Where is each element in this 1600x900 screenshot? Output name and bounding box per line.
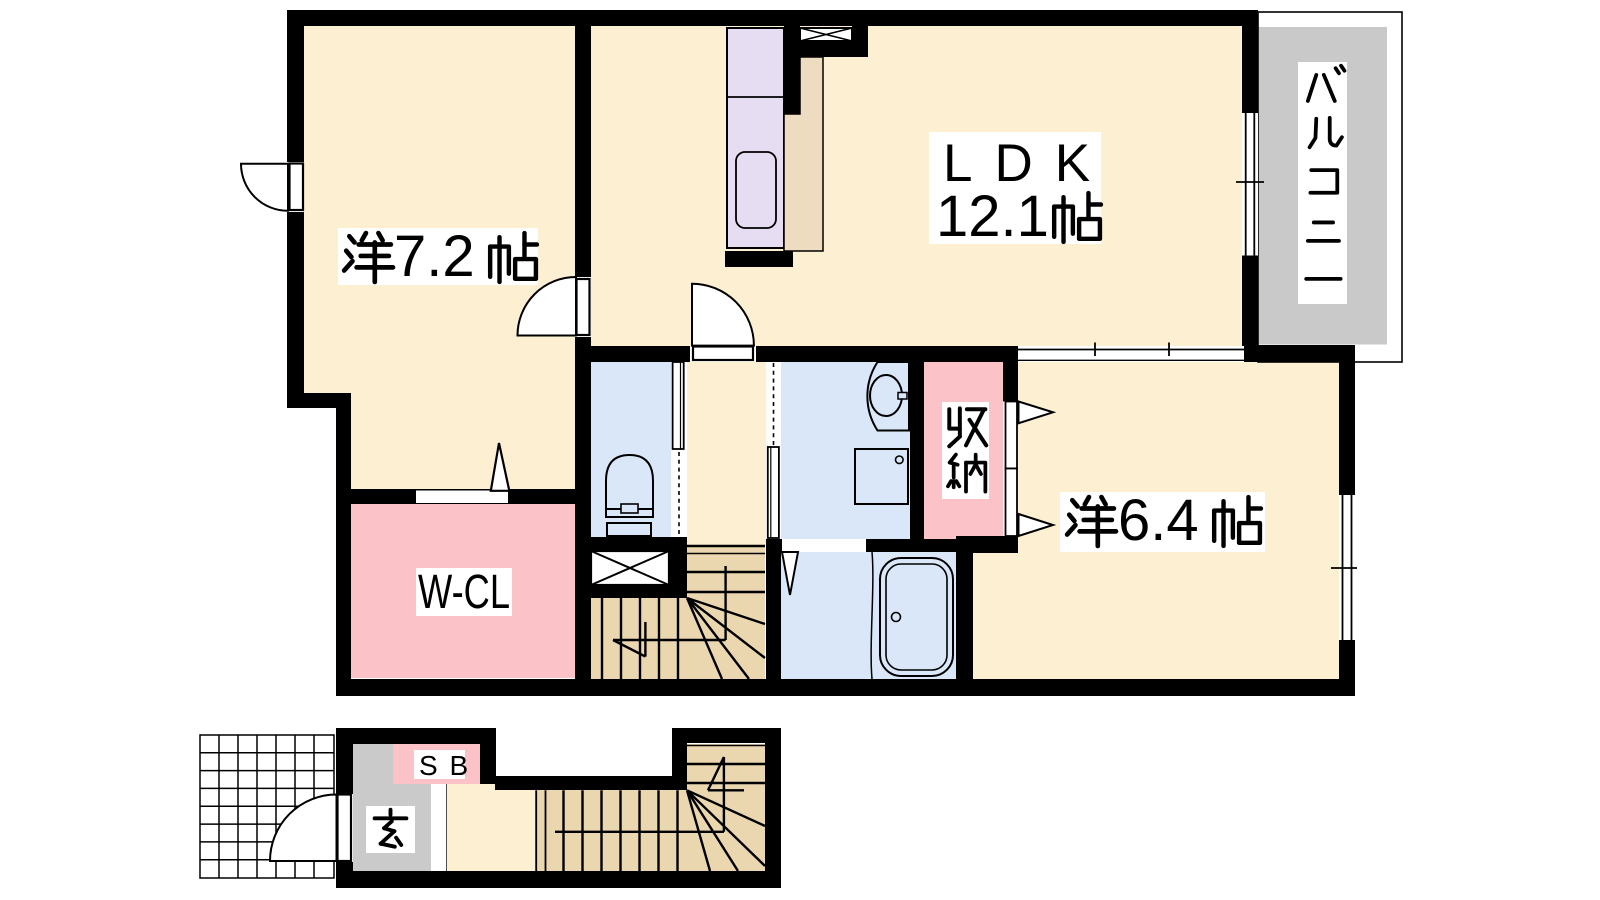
svg-text:7.2: 7.2	[394, 224, 475, 289]
svg-text:12.1: 12.1	[936, 184, 1049, 249]
svg-text:W-CL: W-CL	[418, 566, 510, 619]
svg-text:6.4: 6.4	[1118, 488, 1199, 553]
svg-text:S B: S B	[419, 750, 470, 781]
